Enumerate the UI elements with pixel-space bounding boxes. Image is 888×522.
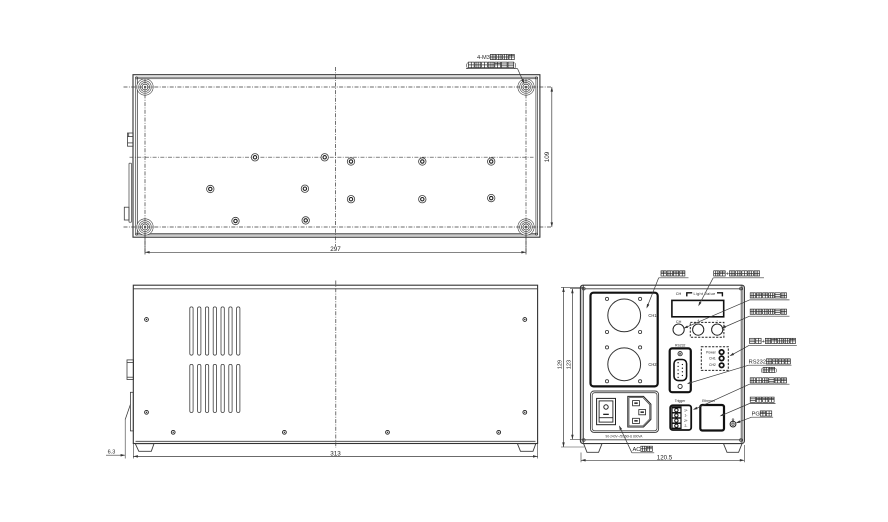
svg-text:Trigger: Trigger (675, 399, 686, 403)
svg-text:123: 123 (566, 360, 572, 369)
svg-text:129: 129 (558, 360, 564, 369)
svg-text:313: 313 (330, 450, 341, 457)
svg-text:120.5: 120.5 (657, 454, 673, 461)
svg-text:(: ( (761, 368, 763, 374)
svg-text:4-M3: 4-M3 (477, 55, 490, 61)
svg-text:2+: 2+ (684, 419, 688, 423)
svg-text:): ) (514, 63, 516, 69)
svg-text:PG: PG (752, 412, 760, 418)
svg-text:109: 109 (544, 151, 551, 162)
svg-text:Power: Power (706, 350, 716, 354)
svg-text:CH: CH (676, 320, 682, 324)
svg-text:CH2: CH2 (709, 363, 716, 367)
svg-text:RS232: RS232 (675, 343, 685, 347)
svg-text:6.3: 6.3 (108, 450, 116, 456)
svg-text:): ) (775, 368, 777, 374)
svg-text:1-: 1- (684, 414, 687, 418)
svg-text:2-: 2- (684, 424, 687, 428)
svg-text:RS232: RS232 (749, 360, 766, 366)
svg-text:CH2: CH2 (648, 362, 657, 367)
svg-text:1+: 1+ (684, 409, 688, 413)
svg-text:297: 297 (330, 246, 341, 253)
svg-text:AC: AC (633, 447, 641, 453)
svg-text:(: ( (466, 63, 468, 69)
svg-text:CH: CH (676, 291, 682, 296)
svg-text:CH1: CH1 (709, 357, 716, 361)
svg-text:CH1: CH1 (648, 313, 657, 318)
